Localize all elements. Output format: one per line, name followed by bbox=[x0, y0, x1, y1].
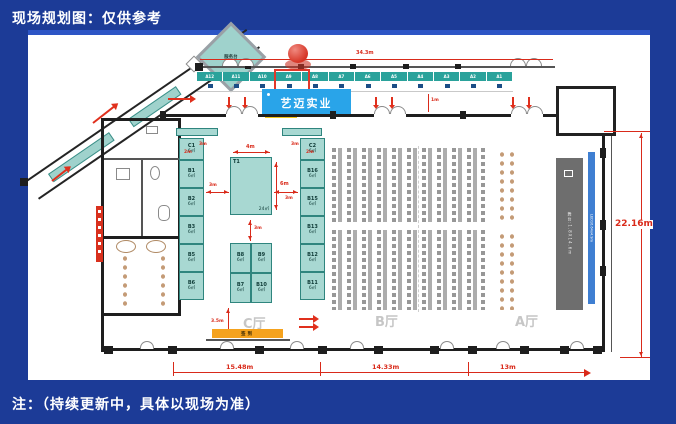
booth-b1: B16㎡ bbox=[179, 160, 204, 188]
wall-pillar bbox=[600, 148, 606, 158]
booth-label: A4 bbox=[417, 75, 423, 79]
booth-id: B3 bbox=[188, 225, 195, 230]
booth-bar: A1 bbox=[487, 72, 513, 81]
booth-id: C2 bbox=[309, 144, 316, 149]
booth-id: B13 bbox=[307, 225, 318, 230]
wall-segment bbox=[258, 114, 374, 117]
meeting-table bbox=[116, 240, 136, 253]
seat-column bbox=[452, 148, 456, 222]
seat-table-bar bbox=[428, 230, 432, 310]
dim-gap-middle bbox=[250, 220, 251, 241]
dim-gap-right-label: 3m bbox=[285, 197, 293, 202]
wall-pillar bbox=[403, 64, 409, 69]
seat-table-bar bbox=[473, 148, 477, 222]
dim-c2-gap-label: 3m bbox=[291, 143, 299, 148]
booth-cap bbox=[282, 128, 322, 136]
booth-size: 6㎡ bbox=[188, 287, 195, 292]
seat-table-bar bbox=[398, 230, 402, 310]
seat-column bbox=[437, 230, 441, 310]
booth-id: T1 bbox=[233, 160, 240, 165]
door-arc bbox=[496, 341, 510, 349]
booth-size: 6㎡ bbox=[309, 287, 316, 292]
page-note: 注：（持续更新中，具体以现场为准） bbox=[12, 394, 260, 414]
dim-t1-width-label: 4m bbox=[246, 145, 255, 150]
led-label: LED16.64x4.9m bbox=[590, 214, 594, 242]
seat-column bbox=[407, 230, 411, 310]
dim-c2-width-label: 2m bbox=[306, 151, 314, 156]
dim-bottom-line bbox=[173, 372, 586, 373]
wall-pillar bbox=[318, 346, 327, 354]
seat-table-bar bbox=[398, 148, 402, 222]
dim-front-label: 3.5m bbox=[211, 320, 224, 325]
chair-column bbox=[508, 150, 516, 222]
seat-table-bar bbox=[443, 148, 447, 222]
booth-label: A10 bbox=[258, 75, 267, 79]
seat-table-bar bbox=[458, 230, 462, 310]
booth-id: B15 bbox=[307, 197, 318, 202]
booth-size: 6㎡ bbox=[309, 231, 316, 236]
booth-furniture bbox=[487, 81, 513, 91]
entry-arrow-down bbox=[391, 97, 393, 106]
booth-b10: B106㎡ bbox=[251, 273, 272, 303]
seat-column bbox=[362, 148, 366, 222]
seat-column bbox=[422, 148, 426, 222]
sink-fixture bbox=[116, 168, 130, 180]
seat-column bbox=[347, 148, 351, 222]
entry-arrow-down bbox=[528, 97, 530, 106]
booth-size: 6㎡ bbox=[188, 259, 195, 264]
seat-column bbox=[422, 230, 426, 310]
chair-column bbox=[498, 232, 506, 310]
seat-column bbox=[392, 230, 396, 310]
location-pin-icon bbox=[288, 44, 308, 63]
seat-column bbox=[467, 148, 471, 222]
booth-a6: A6 bbox=[355, 72, 381, 91]
booth-size: 6㎡ bbox=[237, 289, 244, 294]
booth-a1: A1 bbox=[487, 72, 513, 91]
hall-b-label: B厅 bbox=[375, 311, 398, 330]
booth-id: B9 bbox=[258, 253, 265, 258]
wall-segment bbox=[160, 114, 226, 117]
booth-b2: B26㎡ bbox=[179, 188, 204, 216]
booth-label: A5 bbox=[391, 75, 397, 79]
wall-pillar bbox=[104, 346, 113, 354]
booth-furniture bbox=[434, 81, 460, 91]
booth-bar: A5 bbox=[381, 72, 407, 81]
dim-tick bbox=[173, 362, 174, 376]
door-arc bbox=[140, 341, 154, 349]
toilet-fixture bbox=[158, 205, 170, 221]
booth-a11: A11 bbox=[223, 72, 249, 91]
booth-b16: B166㎡ bbox=[300, 160, 325, 188]
booth-b5: B56㎡ bbox=[179, 244, 204, 272]
hall-divider-dashed bbox=[418, 146, 419, 312]
flow-arrow-right bbox=[299, 326, 317, 328]
counter-table-line bbox=[206, 339, 290, 341]
booth-id: B2 bbox=[188, 197, 195, 202]
dim-tick bbox=[320, 362, 321, 376]
seat-column bbox=[481, 230, 485, 310]
seat-table-bar bbox=[368, 230, 372, 310]
booth-b3: B36㎡ bbox=[179, 216, 204, 244]
booth-size: 6㎡ bbox=[188, 203, 195, 208]
booth-label: A1 bbox=[496, 75, 502, 79]
wall-pillar bbox=[455, 64, 461, 69]
booth-label: A7 bbox=[338, 75, 344, 79]
booth-a3: A3 bbox=[434, 72, 460, 91]
booth-c2: C26㎡ bbox=[300, 138, 325, 160]
booth-id: B16 bbox=[307, 169, 318, 174]
booth-furniture bbox=[223, 81, 249, 91]
wall-pillar bbox=[330, 111, 336, 119]
booth-label: A3 bbox=[444, 75, 450, 79]
booth-id: B6 bbox=[188, 281, 195, 286]
exhibitor-callout: 艺迈实业 bbox=[262, 89, 351, 116]
booth-b15: B156㎡ bbox=[300, 188, 325, 216]
seat-table-bar bbox=[338, 148, 342, 222]
seat-table-bar bbox=[383, 230, 387, 310]
wall-pillar bbox=[600, 266, 606, 276]
booth-id: B8 bbox=[237, 253, 244, 258]
led-screen: LED16.64x4.9m bbox=[588, 152, 595, 304]
seat-column bbox=[452, 230, 456, 310]
booth-label: A12 bbox=[205, 75, 214, 79]
dim-gap-right bbox=[274, 192, 298, 193]
dim-tick bbox=[468, 362, 469, 376]
dimension-line-top bbox=[200, 59, 553, 60]
booth-bar: A10 bbox=[250, 72, 276, 81]
red-wall-banner bbox=[96, 206, 103, 262]
wall-pillar bbox=[350, 64, 356, 69]
booth-label: A11 bbox=[232, 75, 241, 79]
booth-bar: A12 bbox=[197, 72, 223, 81]
wall-pillar bbox=[255, 346, 264, 354]
booth-a2: A2 bbox=[460, 72, 486, 91]
booth-label: A2 bbox=[470, 75, 476, 79]
seat-table-bar bbox=[443, 230, 447, 310]
booth-a5: A5 bbox=[381, 72, 407, 91]
wall-pillar bbox=[20, 178, 28, 186]
signin-counter: 签到 bbox=[212, 329, 283, 338]
booth-cap bbox=[176, 128, 218, 136]
seat-table-bar bbox=[353, 230, 357, 310]
dim-right-tick-bottom bbox=[620, 357, 650, 358]
booth-id: B5 bbox=[188, 253, 195, 258]
wall-pillar bbox=[468, 346, 477, 354]
booth-b8: B86㎡ bbox=[230, 243, 251, 273]
dim-right-label: 22.16m bbox=[615, 220, 653, 229]
booth-id: B10 bbox=[256, 283, 267, 288]
booth-size: 6㎡ bbox=[258, 289, 265, 294]
booth-size: 6㎡ bbox=[309, 259, 316, 264]
booth-id: B7 bbox=[237, 283, 244, 288]
flow-arrow-right bbox=[299, 318, 317, 320]
seat-column bbox=[377, 148, 381, 222]
wall-segment bbox=[104, 236, 180, 239]
door-arc bbox=[220, 341, 234, 349]
dim-foyer-line bbox=[428, 94, 429, 112]
booth-size: 6㎡ bbox=[258, 259, 265, 264]
booth-label: A6 bbox=[365, 75, 371, 79]
screenshot-root: 现场规划图：仅供参考 服务台 34.3m bbox=[0, 0, 676, 424]
seat-table-bar bbox=[353, 148, 357, 222]
booth-a4: A4 bbox=[408, 72, 434, 91]
dim-gap-left-label: 3m bbox=[209, 184, 217, 189]
callout-dot bbox=[267, 93, 270, 96]
wall-pillar bbox=[520, 346, 529, 354]
seat-column bbox=[467, 230, 471, 310]
dim-right-tick-top bbox=[604, 131, 650, 132]
dim-bottom-mid-label: 14.33m bbox=[372, 364, 399, 371]
wall-pillar bbox=[600, 220, 606, 230]
booth-size: 6㎡ bbox=[188, 231, 195, 236]
dim-c1-gap-label: 3m bbox=[199, 143, 207, 148]
wall-pillar bbox=[430, 346, 439, 354]
booth-area: 24㎡ bbox=[259, 208, 269, 213]
door-arc bbox=[570, 341, 584, 349]
booth-id: B1 bbox=[188, 169, 195, 174]
booth-id: C1 bbox=[188, 144, 195, 149]
seat-column bbox=[407, 148, 411, 222]
entry-arrow-down bbox=[228, 97, 230, 106]
seat-column bbox=[481, 148, 485, 222]
booth-bar: A11 bbox=[223, 72, 249, 81]
seat-table-bar bbox=[383, 148, 387, 222]
booth-t1: T1 24㎡ bbox=[230, 157, 272, 215]
seat-column bbox=[332, 148, 336, 222]
booth-bar: A7 bbox=[329, 72, 355, 81]
entry-arrow-down bbox=[375, 97, 377, 106]
chair-column bbox=[498, 150, 506, 222]
wall-pillar bbox=[195, 63, 203, 71]
seat-table-bar bbox=[458, 148, 462, 222]
booth-b12: B126㎡ bbox=[300, 244, 325, 272]
seat-column bbox=[362, 230, 366, 310]
seat-column bbox=[377, 230, 381, 310]
booth-bar: A2 bbox=[460, 72, 486, 81]
door-arc bbox=[350, 341, 364, 349]
seat-column bbox=[347, 230, 351, 310]
wall-segment bbox=[104, 313, 180, 316]
booth-size: 6㎡ bbox=[309, 203, 316, 208]
dim-bottom-left-label: 15.48m bbox=[226, 364, 253, 371]
entry-arrow-down bbox=[244, 97, 246, 106]
booth-bar: A3 bbox=[434, 72, 460, 81]
booth-size: 6㎡ bbox=[188, 175, 195, 180]
dim-t1-height-label: 6m bbox=[280, 182, 289, 187]
booth-furniture bbox=[355, 81, 381, 91]
seat-table-bar bbox=[428, 148, 432, 222]
dim-t1-width bbox=[233, 152, 270, 153]
dim-c1-width-label: 2m bbox=[184, 151, 192, 156]
booth-b7: B76㎡ bbox=[230, 273, 251, 303]
dim-arrowhead bbox=[584, 369, 595, 377]
wall-pillar bbox=[560, 346, 569, 354]
door-arc bbox=[290, 341, 304, 349]
seat-table-bar bbox=[413, 230, 417, 310]
dim-gap-left bbox=[206, 192, 229, 193]
booth-label: A8 bbox=[312, 75, 318, 79]
wall-segment bbox=[101, 118, 181, 121]
booth-b11: B116㎡ bbox=[300, 272, 325, 300]
door-arc bbox=[440, 341, 454, 349]
meeting-table bbox=[146, 240, 166, 253]
dim-foyer-label: 1m bbox=[431, 99, 439, 104]
chair-column bbox=[508, 232, 516, 310]
top-right-room bbox=[556, 86, 616, 136]
toilet-fixture bbox=[150, 166, 160, 180]
exhibitor-name: 艺迈实业 bbox=[281, 95, 333, 111]
stage-icon bbox=[564, 170, 573, 177]
booth-furniture bbox=[460, 81, 486, 91]
seat-table-bar bbox=[473, 230, 477, 310]
dim-right-line bbox=[641, 133, 642, 357]
booth-furniture bbox=[408, 81, 434, 91]
wall-segment bbox=[141, 160, 143, 236]
seat-column bbox=[392, 148, 396, 222]
wall-pillar bbox=[168, 346, 177, 354]
booth-id: B12 bbox=[307, 253, 318, 258]
booth-furniture bbox=[381, 81, 407, 91]
booth-id: B11 bbox=[307, 281, 318, 286]
floor-plan: 服务台 34.3m A12 A11 A10 A9 A8 A7 A6 bbox=[0, 0, 676, 424]
seat-table-bar bbox=[413, 148, 417, 222]
dim-t1-height bbox=[276, 162, 277, 210]
booth-size: 6㎡ bbox=[237, 259, 244, 264]
seat-table-bar bbox=[368, 148, 372, 222]
booth-furniture bbox=[197, 81, 223, 91]
seat-column bbox=[437, 148, 441, 222]
chair-column bbox=[121, 254, 129, 306]
dim-top-label: 34.3m bbox=[356, 51, 374, 56]
booth-b6: B66㎡ bbox=[179, 272, 204, 300]
wall-pillar bbox=[374, 346, 383, 354]
entry-arrow-down bbox=[512, 97, 514, 106]
dim-bottom-right-label: 13m bbox=[500, 364, 516, 371]
stage: 舞台:1.8X14.6m bbox=[556, 158, 583, 310]
dim-gap-middle-label: 3m bbox=[254, 227, 262, 232]
seat-table-bar bbox=[338, 230, 342, 310]
wall-pillar bbox=[593, 346, 602, 354]
room-fixture bbox=[146, 126, 158, 134]
booth-b9: B96㎡ bbox=[251, 243, 272, 273]
stage-label: 舞台:1.8X14.6m bbox=[567, 212, 573, 255]
flow-arrow-right bbox=[168, 98, 194, 100]
wall-segment bbox=[406, 114, 511, 117]
booth-size: 6㎡ bbox=[309, 175, 316, 180]
wall-pillar bbox=[460, 111, 466, 119]
booth-b13: B136㎡ bbox=[300, 216, 325, 244]
chair-column bbox=[159, 254, 167, 306]
seat-column bbox=[332, 230, 336, 310]
booth-bar: A4 bbox=[408, 72, 434, 81]
a-booth-row: A12 A11 A10 A9 A8 A7 A6 A5 A4 A3 A2 A1 bbox=[197, 72, 513, 92]
booth-a12: A12 bbox=[197, 72, 223, 91]
hall-a-label: A厅 bbox=[515, 311, 538, 330]
signin-label: 签到 bbox=[241, 331, 254, 337]
booth-bar: A6 bbox=[355, 72, 381, 81]
